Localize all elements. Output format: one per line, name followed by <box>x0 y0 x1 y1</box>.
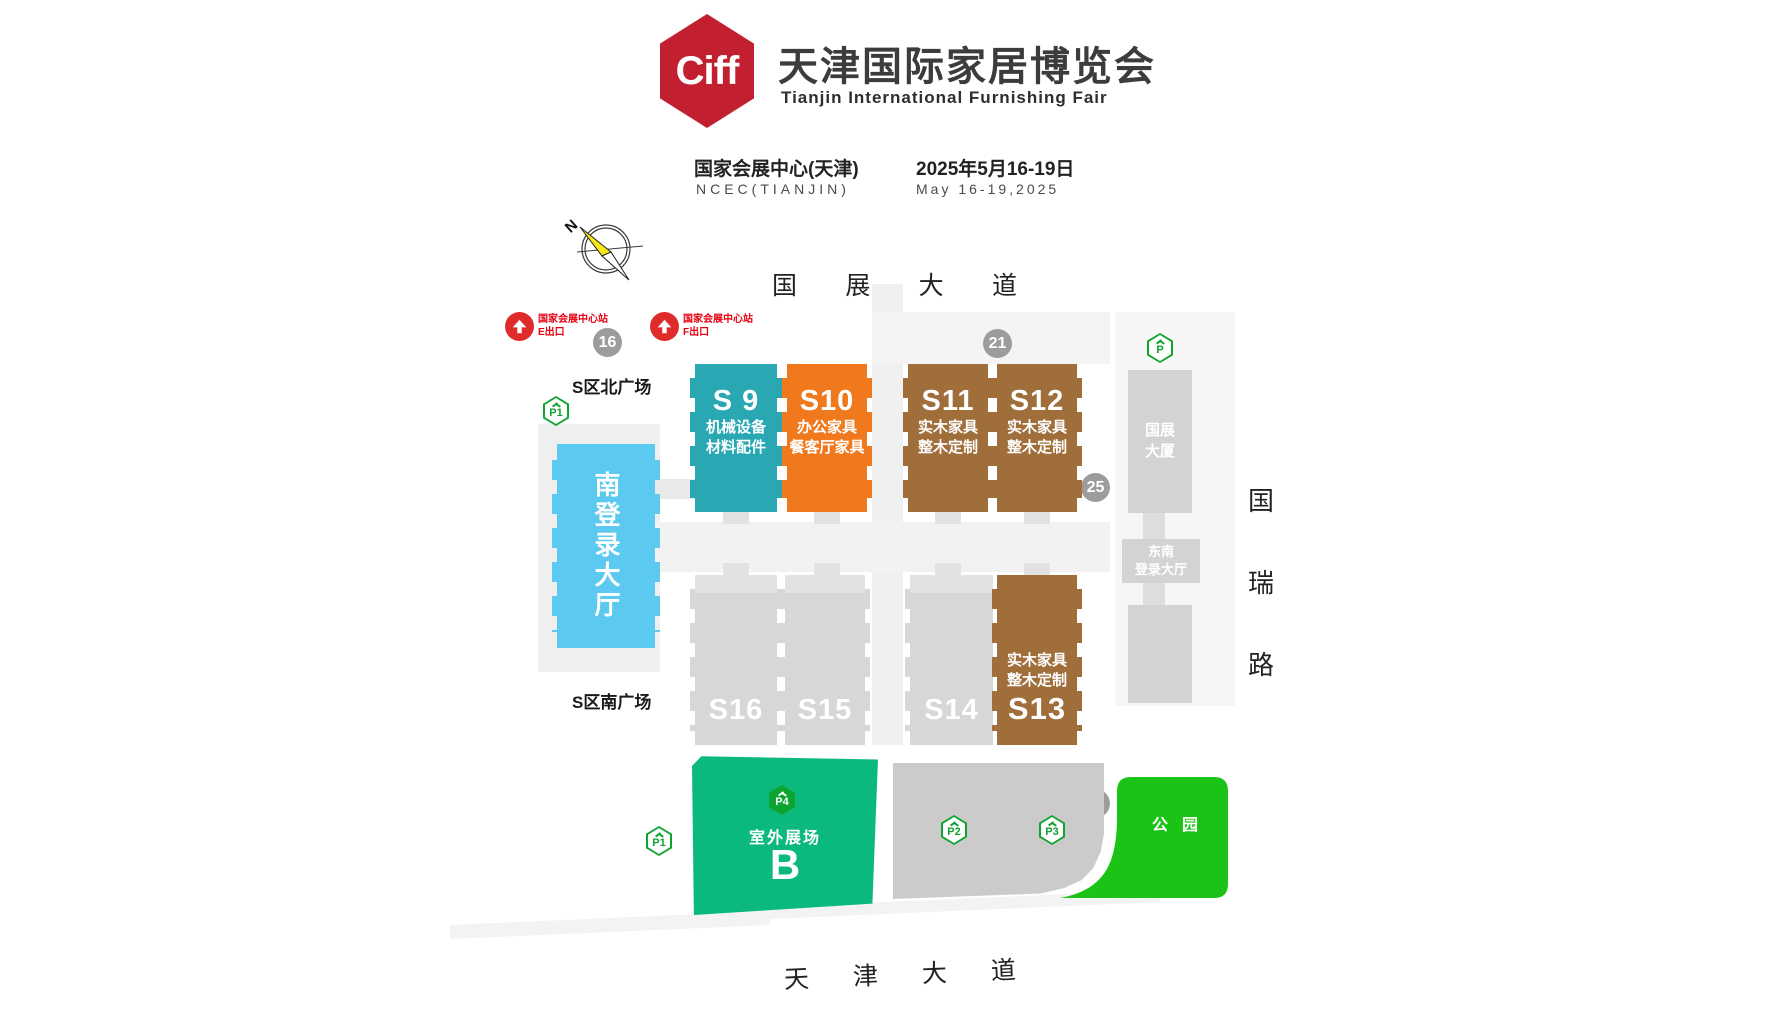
road-north-label: 国 展 大 道 <box>772 266 1017 302</box>
southeast-lobby: 东南 登录大厅 <box>1122 539 1200 583</box>
roof-mark <box>1156 340 1165 344</box>
connector <box>935 512 961 524</box>
connector <box>1024 563 1050 575</box>
connector <box>1143 513 1165 539</box>
fair-subtitle: Tianjin International Furnishing Fair <box>781 88 1108 108</box>
east-building <box>1128 605 1192 703</box>
hall-s13: 实木家具 整木定制 S13 <box>997 575 1077 745</box>
road-south-label: 天 津 大 道 <box>783 950 1016 996</box>
parking-icon-p1: P1 <box>646 826 672 856</box>
ciff-logo: Ciff <box>660 14 754 128</box>
venue-name: 国家会展中心(天津) <box>694 154 859 181</box>
badge-16: 16 <box>593 328 622 357</box>
roof-mark <box>778 792 787 796</box>
fair-dates-en: May 16-19,2025 <box>916 181 1059 197</box>
compass-icon: N <box>563 212 643 287</box>
plaza-north-label: S区北广场 <box>572 373 651 398</box>
outdoor-area-letter: B <box>692 841 878 889</box>
park-area: 公园 <box>1050 770 1235 905</box>
hall-s9: S 9 机械设备 材料配件 <box>695 364 777 512</box>
south-lobby: 南登录大厅 <box>557 444 655 648</box>
road-east-label: 国 瑞 路 <box>1248 481 1274 682</box>
hall-s10: S10 办公家具 餐客厅家具 <box>787 364 867 512</box>
parking-icon-p: P <box>1147 333 1173 363</box>
venue-name-en: NCEC(TIANJIN) <box>696 181 850 197</box>
metro-station-name: 国家会展中心站 <box>538 314 608 327</box>
connector <box>723 512 749 524</box>
roof-mark <box>950 822 959 826</box>
connector <box>814 563 840 575</box>
metro-icon <box>505 312 534 341</box>
hall-s11: S11 实木家具 整木定制 <box>908 364 988 512</box>
parking-icon-p2: P2 <box>941 815 967 845</box>
outdoor-area-b: P4 室外展场 B <box>692 753 878 915</box>
metro-icon <box>650 312 679 341</box>
roof-mark <box>1048 822 1057 826</box>
connector <box>935 563 961 575</box>
fair-dates: 2025年5月16-19日 <box>916 154 1074 181</box>
connector <box>1143 583 1165 605</box>
hall-s15: S15 <box>785 575 865 745</box>
parking-icon-p4: P4 <box>769 785 795 815</box>
venue-map: Ciff 天津国际家居博览会 Tianjin International Fur… <box>0 0 1776 1024</box>
metro-station-name: 国家会展中心站 <box>683 314 753 327</box>
badge-21: 21 <box>983 329 1012 358</box>
connector <box>1024 512 1050 524</box>
metro-station-f: 国家会展中心站 F出口 <box>683 314 753 339</box>
plaza-south-label: S区南广场 <box>572 688 651 713</box>
connector <box>723 563 749 575</box>
badge-25: 25 <box>1081 473 1110 502</box>
ciff-logo-text: Ciff <box>676 49 739 94</box>
park-label: 公园 <box>1152 811 1212 835</box>
hall-s12: S12 实木家具 整木定制 <box>997 364 1077 512</box>
parking-icon-p3: P3 <box>1039 815 1065 845</box>
connector <box>814 512 840 524</box>
parking-icon-p1-top: P1 <box>543 396 569 426</box>
roof-mark <box>655 833 664 837</box>
roof-mark <box>552 403 561 407</box>
south-lobby-label: 南登录大厅 <box>593 471 619 621</box>
hall-s16: S16 <box>695 575 777 745</box>
fair-title: 天津国际家居博览会 <box>778 34 1156 92</box>
compass-north-label: N <box>563 217 581 237</box>
expo-tower: 国展 大厦 <box>1128 370 1192 513</box>
metro-exit-label: F出口 <box>683 327 753 340</box>
hall-s14: S14 <box>910 575 993 745</box>
